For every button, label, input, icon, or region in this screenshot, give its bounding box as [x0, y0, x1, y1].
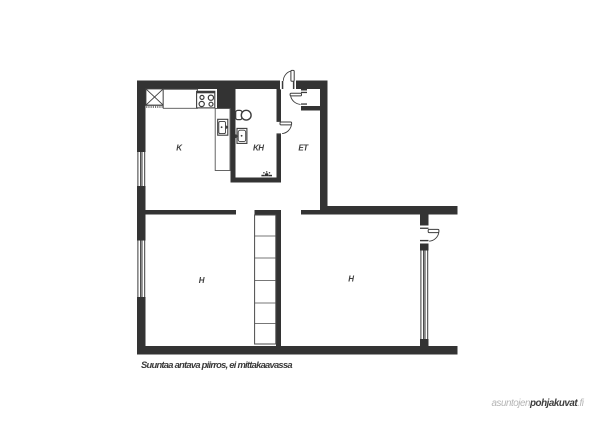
svg-text:ET: ET: [298, 144, 309, 153]
svg-text:KH: KH: [253, 144, 264, 153]
svg-text:H: H: [199, 276, 205, 285]
svg-text:asuntojenpohjakuvat.fi: asuntojenpohjakuvat.fi: [492, 398, 585, 409]
svg-text:H: H: [348, 274, 354, 283]
svg-text:Suuntaa antava piirros, ei mit: Suuntaa antava piirros, ei mittakaavassa: [141, 359, 292, 370]
